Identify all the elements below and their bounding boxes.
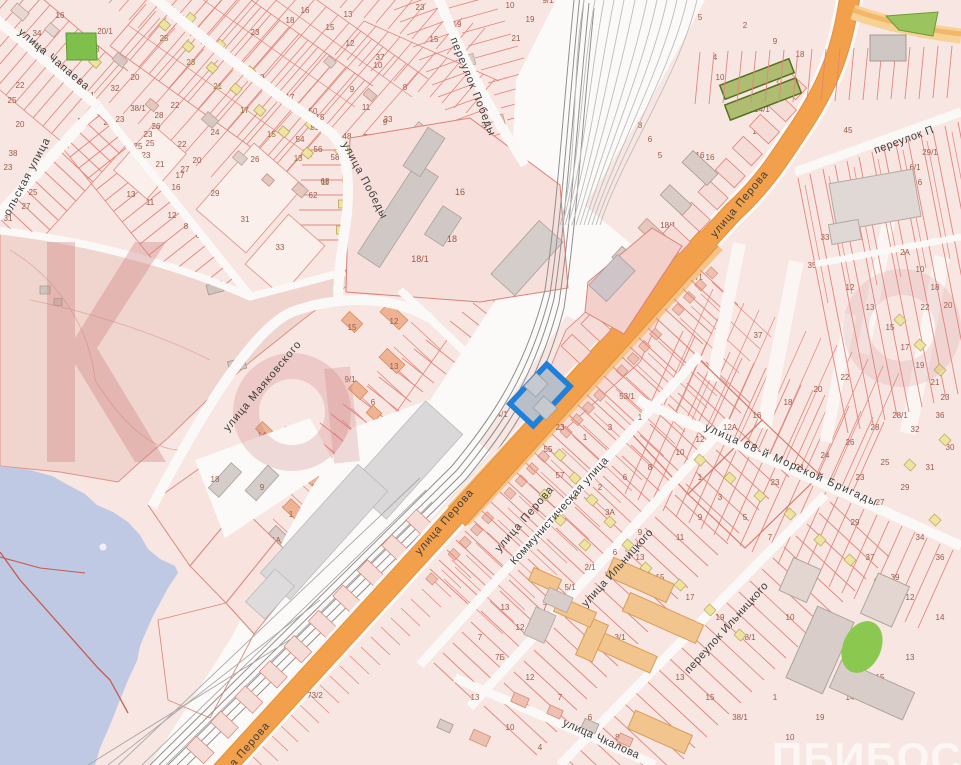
svg-text:16: 16 [706, 153, 715, 162]
svg-text:12: 12 [390, 317, 399, 326]
svg-text:22: 22 [16, 81, 25, 90]
svg-text:54: 54 [296, 135, 305, 144]
svg-text:56: 56 [314, 145, 323, 154]
svg-text:6: 6 [371, 398, 376, 407]
svg-text:15: 15 [430, 35, 439, 44]
svg-text:55: 55 [544, 445, 553, 454]
svg-text:7: 7 [768, 533, 773, 542]
svg-text:10: 10 [506, 1, 515, 10]
svg-text:7: 7 [478, 633, 483, 642]
svg-text:15: 15 [267, 130, 276, 139]
svg-text:62: 62 [309, 191, 318, 200]
svg-text:5: 5 [698, 13, 703, 22]
svg-text:6: 6 [648, 135, 653, 144]
svg-text:13: 13 [676, 673, 685, 682]
svg-text:6: 6 [623, 473, 628, 482]
svg-text:32: 32 [911, 425, 920, 434]
svg-text:2/1: 2/1 [584, 563, 596, 572]
svg-text:38/1: 38/1 [130, 104, 146, 113]
svg-text:31: 31 [926, 463, 935, 472]
svg-text:26: 26 [152, 122, 161, 131]
svg-text:16: 16 [172, 183, 181, 192]
svg-text:28/1: 28/1 [892, 411, 908, 420]
svg-text:6: 6 [918, 178, 923, 187]
svg-text:27: 27 [22, 202, 31, 211]
svg-text:10: 10 [676, 448, 685, 457]
svg-text:13: 13 [471, 693, 480, 702]
svg-text:23: 23 [4, 163, 13, 172]
svg-text:12: 12 [696, 435, 705, 444]
svg-text:4: 4 [538, 743, 543, 752]
svg-text:53/1: 53/1 [619, 392, 635, 401]
svg-text:22: 22 [171, 101, 180, 110]
svg-text:21: 21 [512, 34, 521, 43]
svg-text:16: 16 [753, 411, 762, 420]
svg-text:1: 1 [773, 693, 778, 702]
svg-text:22: 22 [841, 373, 850, 382]
svg-text:15: 15 [706, 693, 715, 702]
svg-text:36: 36 [936, 553, 945, 562]
svg-text:6: 6 [613, 548, 618, 557]
svg-text:28: 28 [155, 111, 164, 120]
svg-text:20: 20 [131, 73, 140, 82]
svg-text:13: 13 [390, 362, 399, 371]
svg-text:28: 28 [871, 423, 880, 432]
svg-text:21: 21 [931, 378, 940, 387]
svg-text:9: 9 [383, 118, 388, 127]
svg-text:19: 19 [816, 713, 825, 722]
svg-text:20: 20 [193, 156, 202, 165]
svg-text:25: 25 [146, 139, 155, 148]
svg-text:15: 15 [348, 323, 357, 332]
svg-text:9: 9 [350, 85, 355, 94]
svg-text:29: 29 [901, 483, 910, 492]
svg-text:17: 17 [240, 106, 249, 115]
svg-text:33: 33 [276, 243, 285, 252]
svg-text:2: 2 [743, 21, 748, 30]
svg-text:1: 1 [583, 433, 588, 442]
svg-text:12: 12 [846, 283, 855, 292]
svg-text:3А: 3А [605, 508, 615, 517]
svg-text:11: 11 [362, 103, 371, 112]
svg-text:68: 68 [321, 177, 330, 186]
svg-text:26: 26 [251, 155, 260, 164]
svg-text:18: 18 [447, 234, 457, 244]
svg-text:45: 45 [844, 126, 853, 135]
svg-text:38/1: 38/1 [732, 713, 748, 722]
svg-text:23: 23 [771, 478, 780, 487]
svg-text:29: 29 [851, 518, 860, 527]
svg-text:7: 7 [558, 693, 563, 702]
svg-text:3: 3 [608, 423, 613, 432]
svg-text:21: 21 [213, 82, 222, 91]
svg-text:20/1: 20/1 [97, 27, 113, 36]
svg-text:11: 11 [146, 198, 155, 207]
svg-text:16: 16 [56, 11, 65, 20]
svg-text:36: 36 [936, 411, 945, 420]
svg-text:31: 31 [241, 215, 250, 224]
svg-text:12: 12 [906, 593, 915, 602]
svg-text:23: 23 [186, 58, 195, 67]
svg-text:12: 12 [168, 211, 177, 220]
svg-text:24: 24 [821, 451, 830, 460]
svg-text:1: 1 [698, 473, 703, 482]
svg-text:13: 13 [501, 603, 510, 612]
svg-text:7Б: 7Б [495, 653, 505, 662]
svg-text:37: 37 [866, 553, 875, 562]
svg-text:37: 37 [754, 331, 763, 340]
svg-text:10: 10 [786, 613, 795, 622]
svg-text:23: 23 [856, 473, 865, 482]
svg-text:12: 12 [516, 623, 525, 632]
svg-text:25: 25 [881, 458, 890, 467]
svg-text:9: 9 [698, 513, 703, 522]
svg-text:12: 12 [346, 39, 355, 48]
svg-text:1: 1 [289, 510, 294, 519]
svg-text:29: 29 [211, 189, 220, 198]
svg-text:5/1: 5/1 [564, 583, 576, 592]
svg-text:9: 9 [260, 483, 265, 492]
svg-text:3: 3 [718, 493, 723, 502]
svg-text:23: 23 [144, 130, 153, 139]
svg-text:22: 22 [178, 140, 187, 149]
svg-text:16: 16 [455, 187, 465, 197]
svg-text:13: 13 [127, 190, 136, 199]
svg-text:15: 15 [886, 323, 895, 332]
svg-text:12: 12 [526, 673, 535, 682]
svg-text:18/1: 18/1 [411, 254, 429, 264]
svg-text:57: 57 [556, 471, 565, 480]
svg-text:8/1: 8/1 [744, 633, 756, 642]
svg-text:23: 23 [941, 393, 950, 402]
svg-text:10: 10 [716, 73, 725, 82]
svg-text:18: 18 [211, 475, 220, 484]
svg-text:21: 21 [156, 160, 165, 169]
svg-text:73/2: 73/2 [307, 691, 323, 700]
svg-text:19: 19 [716, 613, 725, 622]
svg-text:23: 23 [416, 3, 425, 12]
svg-text:2A: 2A [900, 248, 910, 257]
svg-text:26: 26 [846, 438, 855, 447]
svg-text:18: 18 [286, 16, 295, 25]
svg-text:19: 19 [526, 15, 535, 24]
svg-text:23: 23 [116, 115, 125, 124]
svg-text:15: 15 [326, 23, 335, 32]
svg-text:8: 8 [403, 83, 408, 92]
svg-text:20: 20 [814, 385, 823, 394]
svg-text:14: 14 [936, 613, 945, 622]
svg-text:23: 23 [556, 423, 565, 432]
svg-text:27: 27 [181, 165, 190, 174]
svg-text:25: 25 [160, 34, 169, 43]
svg-text:13: 13 [906, 653, 915, 662]
svg-text:13: 13 [344, 10, 353, 19]
svg-text:1: 1 [638, 413, 643, 422]
svg-text:25: 25 [8, 96, 17, 105]
svg-text:9: 9 [773, 37, 778, 46]
svg-text:38: 38 [9, 149, 18, 158]
svg-text:8: 8 [648, 463, 653, 472]
svg-text:32: 32 [111, 84, 120, 93]
svg-text:17: 17 [686, 593, 695, 602]
svg-text:24: 24 [211, 128, 220, 137]
svg-text:25: 25 [29, 188, 38, 197]
svg-text:5: 5 [743, 513, 748, 522]
svg-text:2: 2 [598, 483, 603, 492]
svg-text:13: 13 [294, 154, 303, 163]
svg-text:34: 34 [916, 533, 925, 542]
svg-text:20: 20 [16, 120, 25, 129]
svg-text:ПБИБОСС: ПБИБОСС [772, 734, 961, 765]
svg-text:17: 17 [901, 343, 910, 352]
svg-text:10: 10 [374, 61, 383, 70]
svg-text:18: 18 [784, 398, 793, 407]
svg-text:10: 10 [506, 723, 515, 732]
svg-text:16: 16 [301, 6, 310, 15]
svg-text:11: 11 [676, 533, 685, 542]
svg-text:9/1: 9/1 [542, 0, 554, 5]
svg-text:23: 23 [251, 28, 260, 37]
svg-text:5: 5 [658, 151, 663, 160]
